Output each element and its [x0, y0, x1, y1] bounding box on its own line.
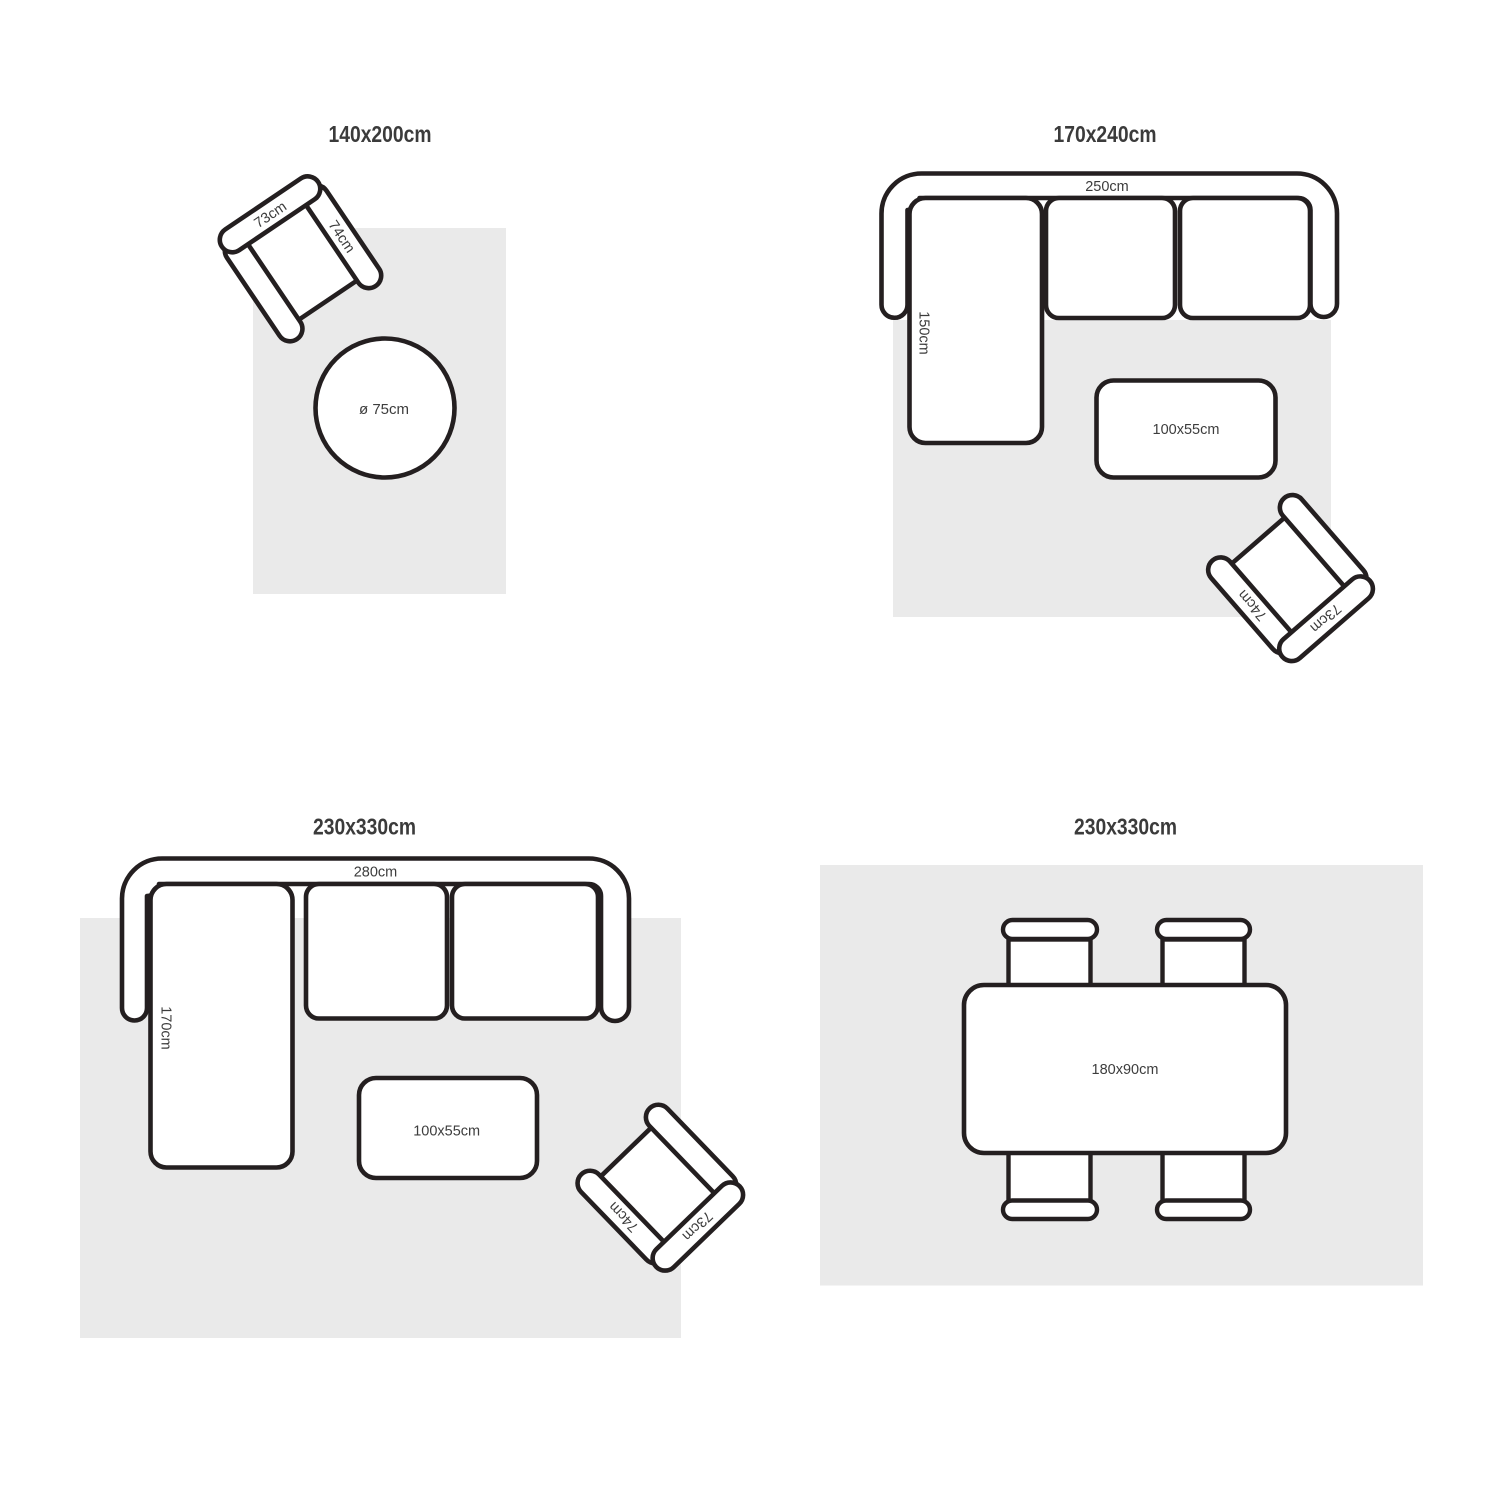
- svg-text:170x240cm: 170x240cm: [1054, 121, 1157, 147]
- svg-text:230x330cm: 230x330cm: [313, 814, 416, 840]
- svg-text:140x200cm: 140x200cm: [329, 121, 432, 147]
- svg-text:180x90cm: 180x90cm: [1092, 1062, 1159, 1078]
- svg-text:170cm: 170cm: [158, 1006, 174, 1050]
- svg-text:100x55cm: 100x55cm: [413, 1124, 480, 1140]
- svg-text:230x330cm: 230x330cm: [1074, 814, 1177, 840]
- svg-text:150cm: 150cm: [915, 311, 931, 355]
- svg-text:280cm: 280cm: [354, 864, 398, 880]
- svg-text:100x55cm: 100x55cm: [1153, 422, 1220, 438]
- svg-text:ø 75cm: ø 75cm: [359, 401, 409, 418]
- svg-text:250cm: 250cm: [1085, 179, 1129, 195]
